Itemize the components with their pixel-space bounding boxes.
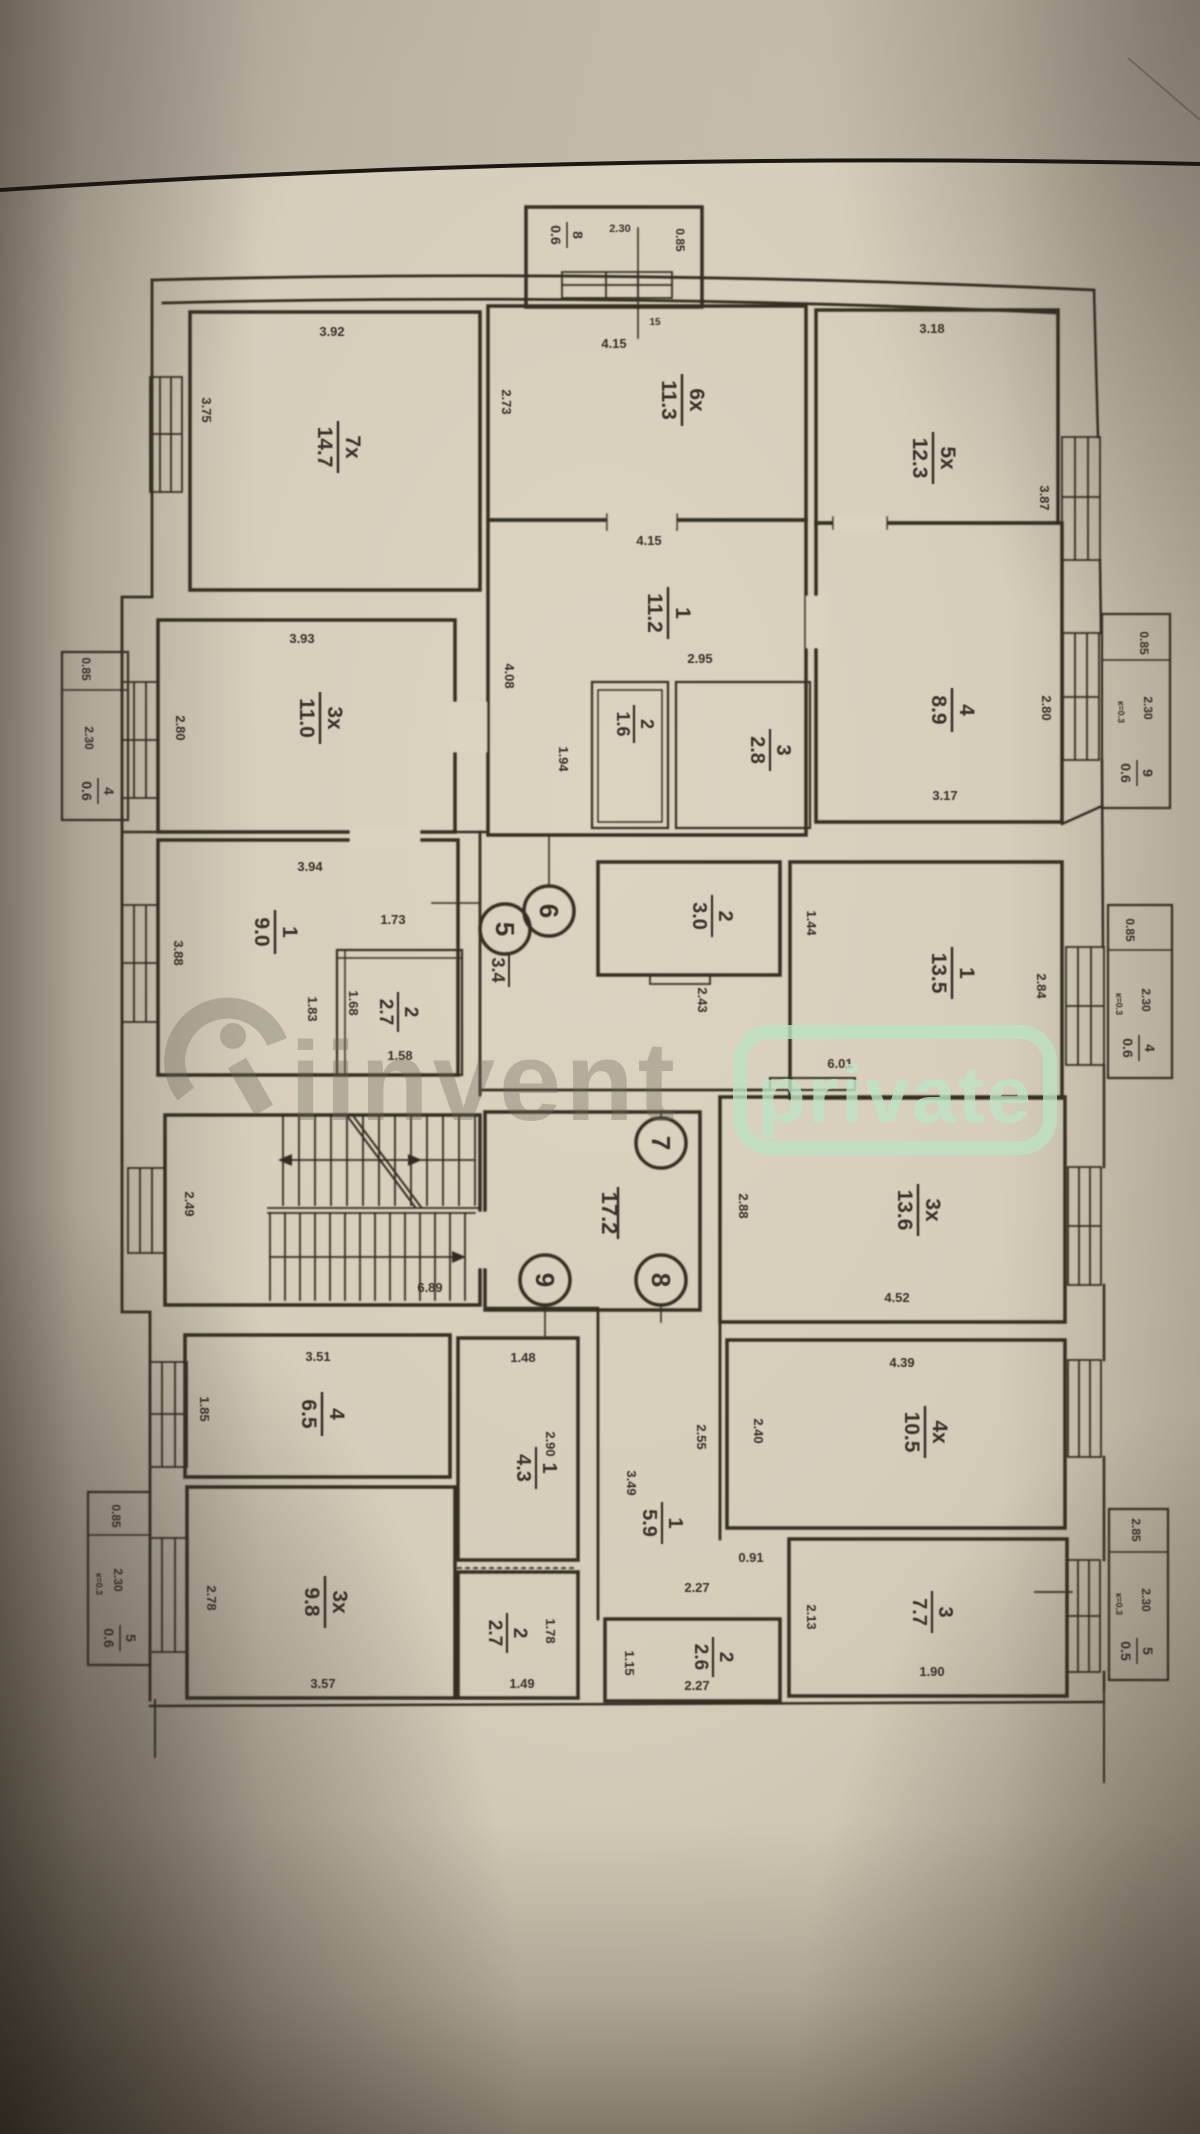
svg-text:5x: 5x: [936, 446, 959, 470]
svg-text:1: 1: [671, 607, 694, 619]
svg-text:13.6: 13.6: [893, 1190, 916, 1231]
svg-text:11.2: 11.2: [643, 593, 666, 633]
svg-text:2.30: 2.30: [609, 223, 630, 235]
svg-text:1.78: 1.78: [543, 1618, 558, 1643]
svg-text:0.85: 0.85: [79, 657, 93, 681]
svg-text:11.3: 11.3: [657, 380, 680, 420]
svg-text:к=0.3: к=0.3: [1116, 701, 1126, 723]
svg-text:2.80: 2.80: [173, 715, 188, 740]
svg-text:1.68: 1.68: [346, 990, 361, 1015]
svg-text:2.90: 2.90: [543, 1431, 558, 1456]
svg-text:2: 2: [400, 1007, 421, 1018]
svg-text:4.15: 4.15: [601, 336, 626, 351]
svg-text:4: 4: [1142, 1044, 1158, 1052]
svg-text:1: 1: [664, 1517, 686, 1528]
svg-text:3.92: 3.92: [319, 324, 344, 339]
svg-text:9: 9: [530, 1273, 560, 1287]
svg-text:4.39: 4.39: [889, 1355, 914, 1370]
svg-text:2.78: 2.78: [204, 1585, 219, 1610]
svg-text:3.0: 3.0: [688, 902, 710, 930]
svg-text:4.08: 4.08: [502, 663, 517, 688]
svg-text:3.17: 3.17: [932, 788, 957, 803]
svg-text:2.85: 2.85: [1129, 1518, 1143, 1542]
svg-text:2.30: 2.30: [1139, 988, 1153, 1012]
svg-text:3.87: 3.87: [1037, 485, 1052, 510]
svg-text:2.80: 2.80: [1039, 695, 1054, 720]
svg-text:4: 4: [101, 787, 117, 795]
svg-text:2: 2: [509, 1628, 530, 1639]
svg-text:4x: 4x: [928, 1420, 951, 1444]
svg-text:3.51: 3.51: [305, 1349, 330, 1364]
svg-text:1.94: 1.94: [556, 746, 571, 772]
svg-text:2.30: 2.30: [82, 726, 96, 750]
svg-text:5: 5: [490, 922, 520, 936]
svg-text:3.75: 3.75: [199, 397, 214, 422]
svg-text:1.48: 1.48: [510, 1350, 535, 1365]
svg-text:2.55: 2.55: [694, 1424, 709, 1449]
svg-text:iinvent: iinvent: [290, 1019, 679, 1144]
svg-text:1.73: 1.73: [380, 912, 405, 927]
svg-text:2.40: 2.40: [751, 1418, 766, 1443]
svg-text:3.49: 3.49: [624, 1470, 639, 1495]
svg-text:2.27: 2.27: [684, 1678, 709, 1693]
svg-text:2.7: 2.7: [484, 1620, 505, 1646]
svg-text:2.30: 2.30: [1141, 696, 1155, 720]
svg-text:2.49: 2.49: [182, 1191, 197, 1216]
svg-text:3x: 3x: [323, 706, 346, 730]
svg-text:2.30: 2.30: [111, 1568, 125, 1592]
svg-text:0.5: 0.5: [1118, 1641, 1134, 1661]
svg-text:6.89: 6.89: [417, 1280, 442, 1295]
svg-text:2.6: 2.6: [690, 1644, 711, 1670]
svg-text:private: private: [757, 1050, 1033, 1139]
svg-text:14.7: 14.7: [313, 427, 336, 468]
svg-text:1.44: 1.44: [804, 910, 819, 936]
svg-text:3.94: 3.94: [297, 859, 323, 874]
svg-text:9.0: 9.0: [250, 917, 273, 946]
svg-text:6.5: 6.5: [297, 1399, 320, 1429]
svg-text:0.91: 0.91: [738, 1550, 763, 1565]
svg-text:1.49: 1.49: [509, 1676, 534, 1691]
svg-text:3: 3: [934, 1606, 956, 1617]
svg-text:2.13: 2.13: [804, 1604, 819, 1629]
svg-text:3.93: 3.93: [289, 631, 314, 646]
svg-text:2.88: 2.88: [736, 1193, 751, 1218]
svg-text:0.85: 0.85: [1137, 631, 1151, 655]
svg-text:0.85: 0.85: [109, 1504, 123, 1528]
svg-text:0.6: 0.6: [79, 781, 95, 801]
svg-text:5: 5: [1140, 1647, 1156, 1655]
svg-text:1: 1: [955, 967, 978, 979]
svg-text:2.84: 2.84: [1034, 973, 1049, 999]
svg-text:1.6: 1.6: [613, 711, 633, 736]
svg-text:1.15: 1.15: [622, 1650, 637, 1675]
svg-text:3.57: 3.57: [310, 1676, 335, 1691]
svg-text:2.73: 2.73: [499, 389, 514, 414]
svg-text:12.3: 12.3: [908, 438, 931, 479]
svg-text:4.15: 4.15: [636, 533, 661, 548]
svg-text:к=0.3: к=0.3: [1114, 1593, 1124, 1615]
svg-text:3x: 3x: [921, 1198, 944, 1222]
svg-text:1.85: 1.85: [197, 1396, 212, 1421]
svg-text:3.18: 3.18: [919, 321, 944, 336]
svg-text:2.8: 2.8: [746, 736, 768, 764]
svg-text:к=0.3: к=0.3: [94, 1573, 104, 1595]
svg-text:4: 4: [955, 704, 978, 716]
svg-text:2.30: 2.30: [1139, 1588, 1153, 1612]
svg-text:2: 2: [637, 719, 657, 729]
svg-text:2: 2: [714, 910, 736, 921]
svg-text:1: 1: [538, 1462, 560, 1473]
svg-text:15: 15: [649, 317, 661, 328]
svg-text:2: 2: [715, 1652, 736, 1663]
svg-text:3.88: 3.88: [171, 940, 186, 965]
svg-text:0.6: 0.6: [101, 1628, 117, 1648]
svg-text:0.6: 0.6: [1120, 1038, 1136, 1058]
svg-text:9.8: 9.8: [300, 1587, 323, 1617]
svg-text:4: 4: [325, 1408, 348, 1420]
svg-text:0.6: 0.6: [548, 225, 564, 245]
svg-text:10.5: 10.5: [900, 1412, 923, 1453]
svg-text:9: 9: [1140, 769, 1156, 777]
svg-text:4.52: 4.52: [884, 1290, 909, 1305]
svg-text:3: 3: [772, 744, 794, 755]
svg-text:6x: 6x: [685, 388, 708, 412]
svg-text:1.83: 1.83: [305, 996, 320, 1021]
svg-text:к=0.3: к=0.3: [1114, 993, 1124, 1015]
svg-text:8: 8: [570, 231, 586, 239]
svg-text:11.0: 11.0: [295, 698, 318, 738]
svg-text:6: 6: [534, 904, 564, 918]
svg-text:8: 8: [646, 1273, 676, 1287]
svg-text:0.85: 0.85: [673, 228, 687, 252]
svg-text:3x: 3x: [328, 1590, 351, 1614]
svg-text:2.43: 2.43: [695, 987, 710, 1012]
svg-text:1: 1: [278, 926, 301, 938]
svg-text:4.3: 4.3: [512, 1454, 534, 1482]
svg-text:3.4: 3.4: [488, 957, 508, 982]
svg-text:1.90: 1.90: [919, 1664, 944, 1679]
svg-text:7x: 7x: [341, 435, 364, 459]
svg-text:5.9: 5.9: [638, 1509, 660, 1537]
svg-text:8.9: 8.9: [927, 695, 950, 724]
svg-text:13.5: 13.5: [927, 953, 950, 994]
svg-text:7.7: 7.7: [908, 1598, 930, 1626]
svg-text:0.6: 0.6: [1118, 763, 1134, 783]
svg-text:0.85: 0.85: [1123, 918, 1137, 942]
svg-text:5: 5: [123, 1634, 139, 1642]
svg-text:2.27: 2.27: [684, 1580, 709, 1595]
svg-text:2.95: 2.95: [687, 651, 712, 666]
